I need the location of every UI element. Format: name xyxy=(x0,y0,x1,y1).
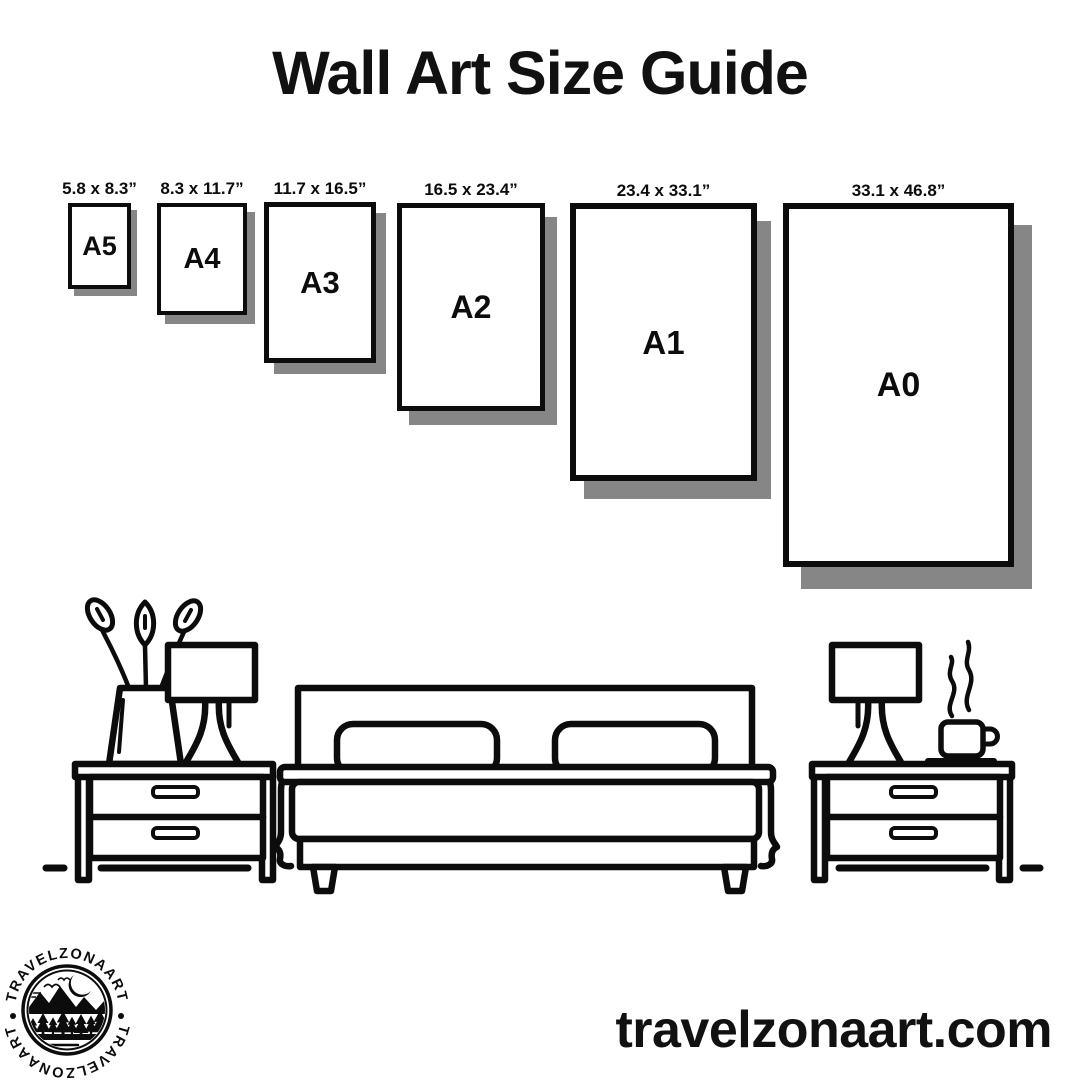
moon-icon xyxy=(69,975,91,997)
paper-a0: 33.1 x 46.8” A0 xyxy=(783,203,1014,567)
table-lamp-right-icon xyxy=(832,645,919,764)
size-guide-infographic: Wall Art Size Guide 5.8 x 8.3” A5 8.3 x … xyxy=(0,0,1080,1080)
nightstand-right-icon xyxy=(812,764,1012,880)
paper-a3-dims: 11.7 x 16.5” xyxy=(274,179,367,199)
website-url: travelzonaart.com xyxy=(615,1000,1052,1060)
paper-a1: 23.4 x 33.1” A1 xyxy=(570,203,757,481)
nightstand-left-icon xyxy=(75,764,273,880)
pine-trees-icon xyxy=(27,1010,113,1038)
paper-a3-label: A3 xyxy=(300,267,340,298)
bird-icon xyxy=(44,985,60,988)
paper-a2-dims: 16.5 x 23.4” xyxy=(424,180,518,200)
paper-a2-label: A2 xyxy=(451,291,492,323)
logo-dot-right xyxy=(118,1013,124,1019)
double-bed-icon xyxy=(275,688,777,891)
logo-dot-left xyxy=(10,1013,16,1019)
paper-a2: 16.5 x 23.4” A2 xyxy=(397,203,545,411)
paper-a5-dims: 5.8 x 8.3” xyxy=(62,179,137,199)
paper-a1-label: A1 xyxy=(642,326,684,359)
paper-a4: 8.3 x 11.7” A4 xyxy=(157,203,247,315)
paper-a5-label: A5 xyxy=(82,233,117,260)
brand-logo: TRAVELZONAART TRAVELZONAART xyxy=(0,930,150,1080)
bedroom-illustration xyxy=(0,580,1080,900)
paper-a4-label: A4 xyxy=(183,245,220,274)
paper-a0-label: A0 xyxy=(877,368,920,402)
logo-text-top: TRAVELZONAART xyxy=(4,946,131,1004)
coffee-cup-icon xyxy=(928,642,998,761)
paper-a5: 5.8 x 8.3” A5 xyxy=(68,203,131,289)
bird-icon xyxy=(58,978,70,980)
paper-a3: 11.7 x 16.5” A3 xyxy=(264,202,376,363)
paper-a4-dims: 8.3 x 11.7” xyxy=(160,179,243,199)
paper-a0-dims: 33.1 x 46.8” xyxy=(852,181,946,201)
page-title: Wall Art Size Guide xyxy=(0,38,1080,108)
paper-a1-dims: 23.4 x 33.1” xyxy=(617,181,711,201)
